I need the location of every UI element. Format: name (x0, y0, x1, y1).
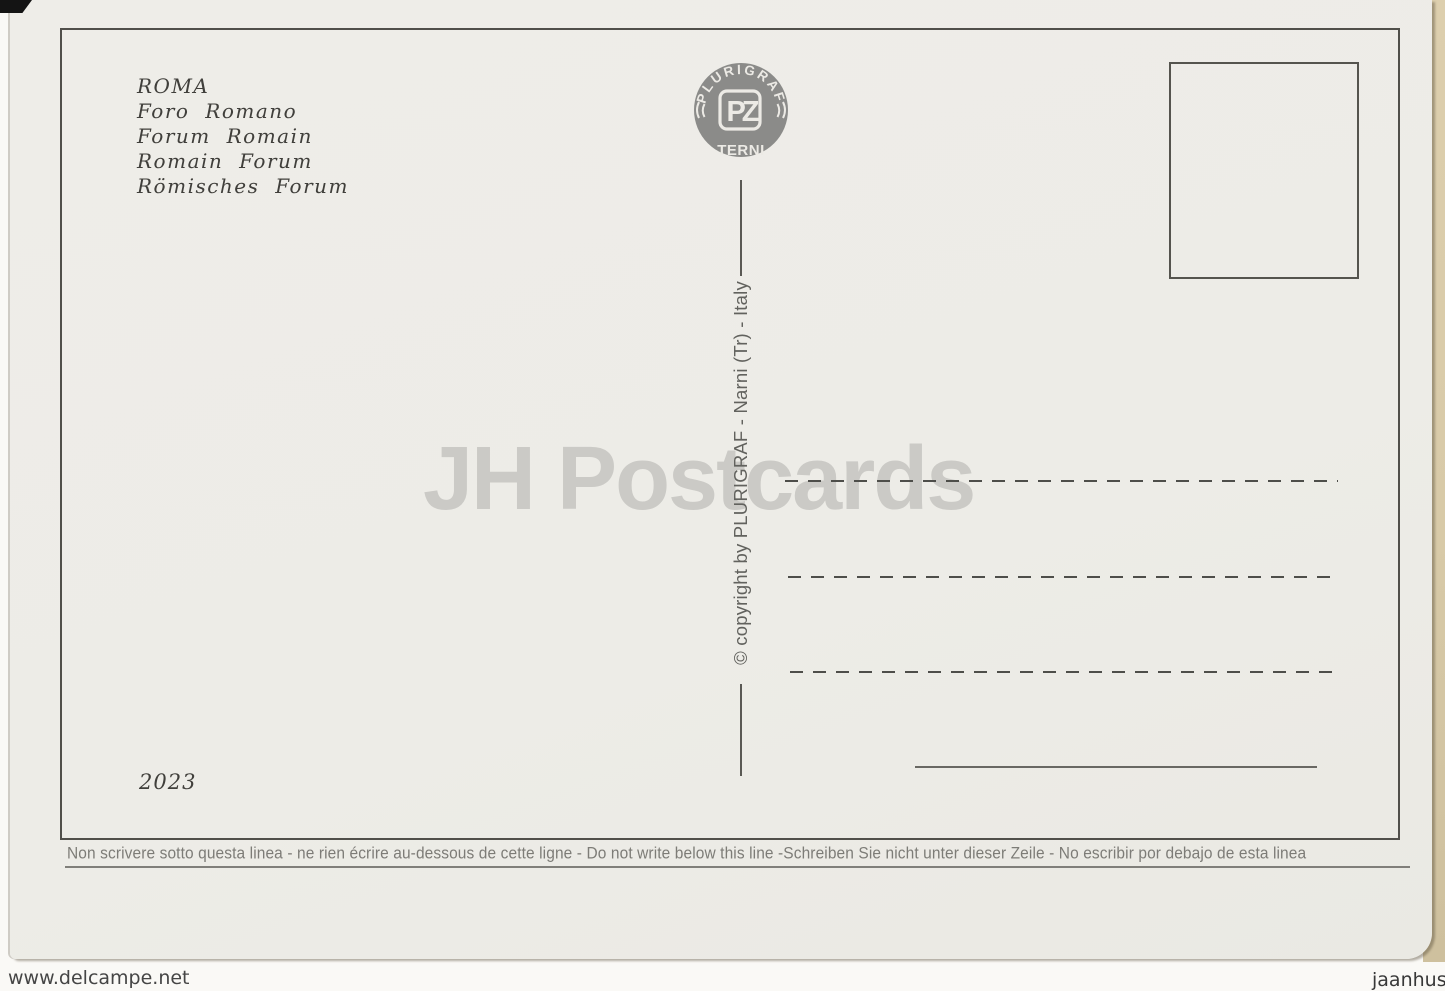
stamp-box (1169, 62, 1359, 279)
postcard-back: JH Postcards ROMA Foro Romano Forum Roma… (10, 0, 1432, 959)
instruction-underline (65, 866, 1410, 868)
signature-line (915, 766, 1317, 768)
do-not-write-instruction: Non scrivere sotto questa linea - ne rie… (67, 845, 1306, 864)
title-line-italian-city: ROMA (137, 74, 349, 99)
divider-line-bottom (740, 684, 742, 776)
svg-text:PZ: PZ (726, 96, 758, 128)
address-dashed-line-3 (790, 671, 1340, 673)
address-dashed-line-2 (788, 576, 1340, 578)
site-watermark: www.delcampe.net (8, 967, 190, 989)
seller-watermark: jaanhus (1372, 969, 1445, 991)
pz-monogram-icon: PZ (720, 91, 760, 129)
title-block: ROMA Foro Romano Forum Romain Romain For… (137, 74, 349, 199)
postcard-scan-page: JH Postcards ROMA Foro Romano Forum Roma… (0, 0, 1445, 987)
copyright-vertical-text: © copyright by PLURIGRAF - Narni (Tr) - … (730, 281, 752, 665)
divider-line-top (740, 180, 742, 276)
title-line-french: Forum Romain (137, 124, 349, 149)
address-dashed-line-1 (785, 480, 1338, 482)
catalog-number: 2023 (139, 770, 196, 794)
title-line-german: Römisches Forum (137, 174, 349, 199)
title-line-italian: Foro Romano (137, 99, 349, 124)
logo-city-text: TERNI (717, 142, 765, 159)
publisher-logo: PLURIGRAF PZ TERNI (684, 53, 799, 168)
title-line-english: Romain Forum (137, 149, 349, 174)
